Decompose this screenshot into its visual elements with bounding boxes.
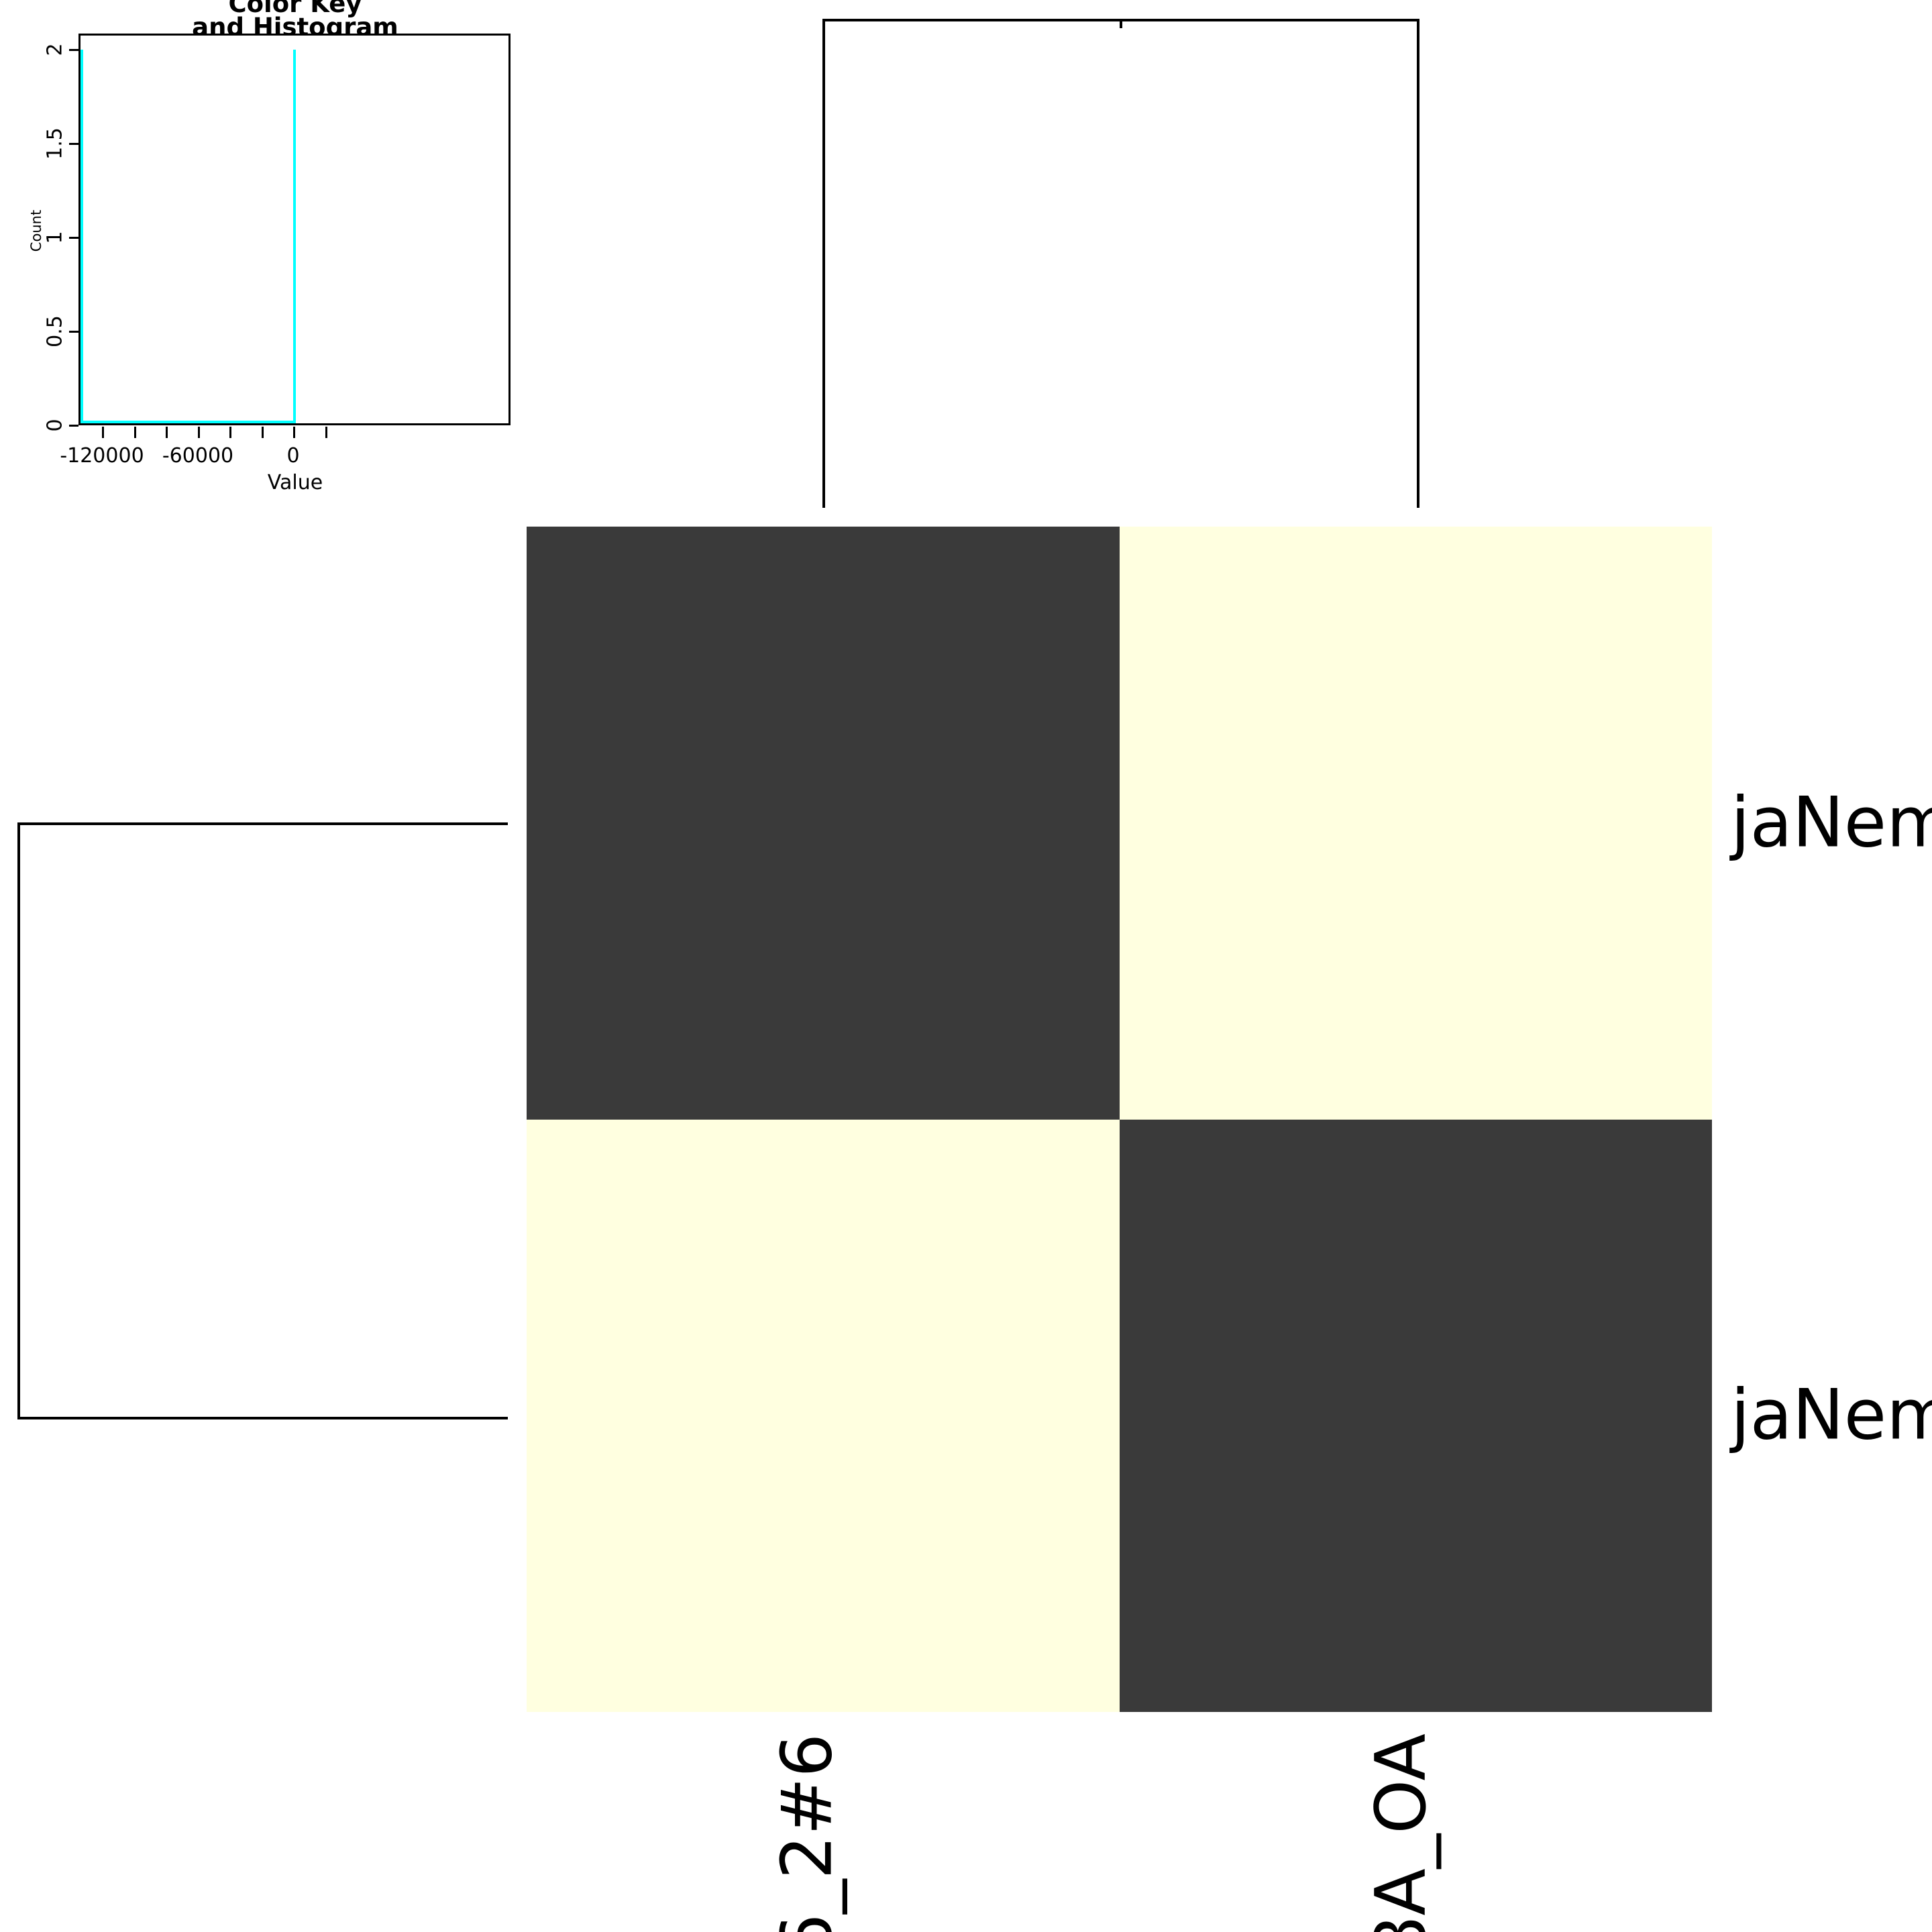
y-tick-label-1_5: 1.5 [44, 127, 67, 160]
column-dendrogram-root-stub [1120, 19, 1122, 28]
histogram-trace-min-spike [80, 50, 83, 423]
histogram-trace-baseline [80, 421, 296, 423]
x-axis-tick [102, 427, 104, 438]
heatmap-cell-r1c0 [527, 1120, 1120, 1712]
col-label-2: 8A_OA [1367, 1733, 1436, 1932]
y-axis-tick [69, 237, 78, 239]
x-tick-label-zero: 0 [219, 444, 367, 468]
y-tick-label-0_5: 0.5 [44, 315, 67, 347]
heatmap2-figure: Color Key and Histogram -120000 -60000 0… [0, 0, 1932, 1932]
heatmap-grid [527, 527, 1712, 1712]
x-axis-tick [325, 427, 327, 438]
heatmap-cell-r0c1 [1120, 527, 1712, 1120]
value-axis-label: Value [221, 471, 369, 494]
y-axis-tick [69, 425, 78, 427]
row-dendrogram-branch-top [17, 822, 508, 825]
row-dendrogram-bar [17, 822, 20, 1419]
heatmap-cell-r0c0 [527, 527, 1120, 1120]
histogram-trace-zero-spike [293, 50, 296, 423]
y-tick-label-0: 0 [44, 419, 67, 431]
y-axis-tick [69, 49, 78, 51]
x-axis-tick [293, 427, 295, 438]
x-axis-tick [262, 427, 264, 438]
y-axis-tick [69, 331, 78, 333]
x-axis-tick [166, 427, 168, 438]
y-tick-label-2: 2 [44, 43, 67, 56]
column-dendrogram-leg-left [822, 19, 825, 508]
row-dendrogram-branch-bottom [17, 1417, 508, 1419]
y-tick-label-1: 1 [44, 231, 67, 244]
x-axis-tick [198, 427, 200, 438]
y-axis-tick [69, 143, 78, 145]
row-label-1: jaNem [1731, 789, 1932, 858]
x-axis-tick [134, 427, 136, 438]
x-axis-tick [229, 427, 231, 438]
heatmap-cell-r1c1 [1120, 1120, 1712, 1712]
col-label-1: 6_2#6 [773, 1733, 842, 1932]
row-label-2: jaNem [1731, 1381, 1932, 1450]
count-axis-label: Count [28, 210, 44, 252]
column-dendrogram-leg-right [1417, 19, 1419, 508]
